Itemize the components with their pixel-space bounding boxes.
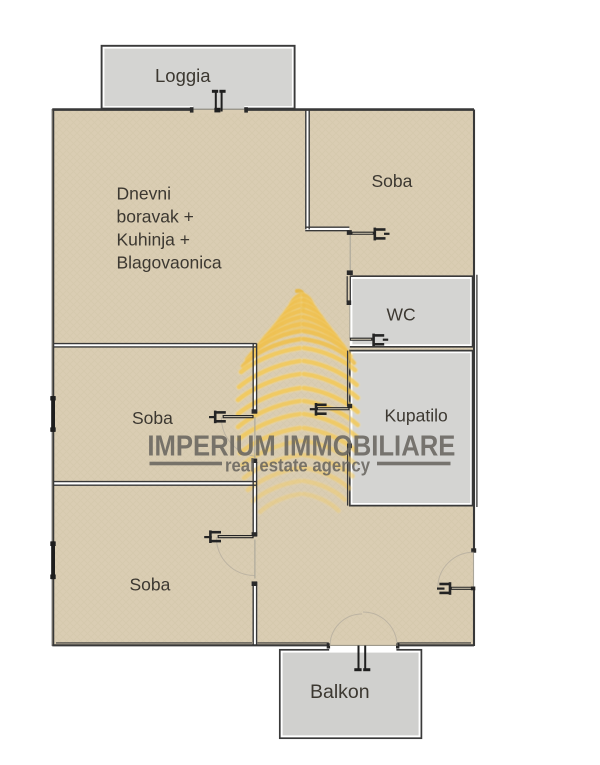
svg-text:Kuhinja +: Kuhinja + [117,230,190,250]
svg-text:Soba: Soba [130,575,171,595]
svg-text:Soba: Soba [372,171,413,191]
svg-text:Balkon: Balkon [310,681,370,703]
svg-text:real estate agency: real estate agency [225,455,370,475]
svg-text:Loggia: Loggia [155,65,211,86]
svg-text:Kupatilo: Kupatilo [385,406,448,426]
svg-text:WC: WC [387,305,416,325]
svg-text:Dnevni: Dnevni [117,184,171,204]
svg-text:Blagovaonica: Blagovaonica [117,253,222,273]
svg-text:boravak +: boravak + [117,207,194,227]
svg-text:Soba: Soba [132,408,173,428]
